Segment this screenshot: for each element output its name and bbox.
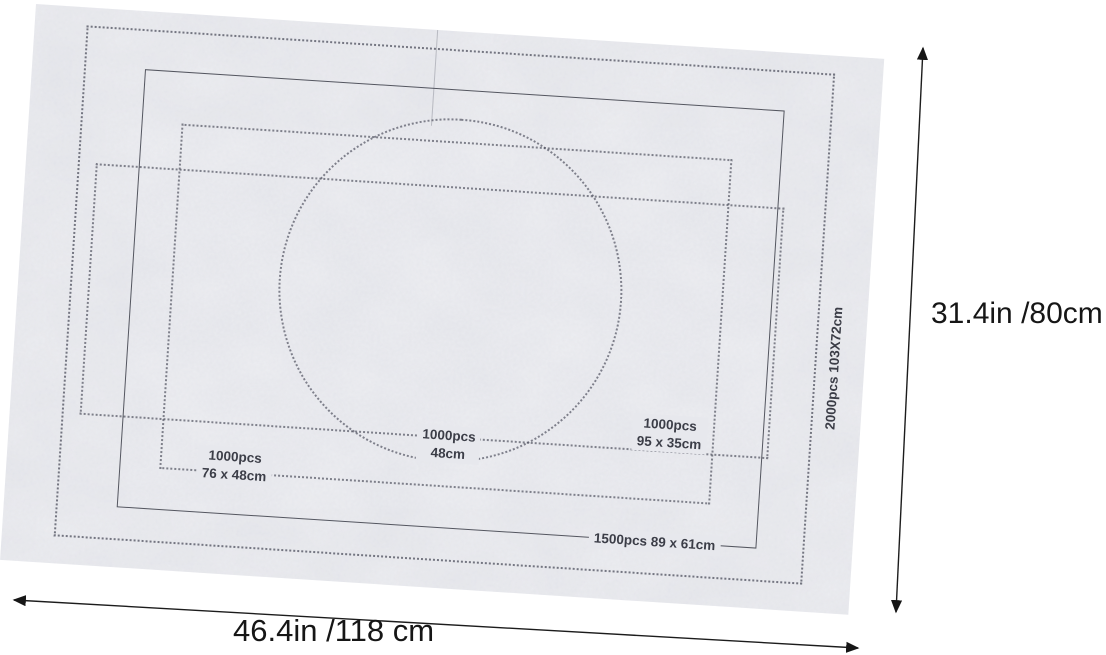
label-line: 95 x 35cm	[636, 432, 702, 454]
felt-mat: 1000pcs 48cm 1000pcs 76 x 48cm 1000pcs 9…	[0, 4, 884, 615]
label-1000pcs-round: 1000pcs 48cm	[416, 424, 482, 465]
product-dimension-diagram: 1000pcs 48cm 1000pcs 76 x 48cm 1000pcs 9…	[0, 0, 1106, 655]
label-2000pcs: 2000pcs 103X72cm	[821, 306, 846, 430]
label-line: 1000pcs	[422, 425, 476, 446]
height-dimension-label: 31.4in /80cm	[931, 297, 1103, 331]
height-dimension-arrow-icon	[896, 48, 923, 612]
label-line: 48cm	[421, 443, 475, 464]
label-1000pcs-76x48: 1000pcs 76 x 48cm	[196, 445, 273, 487]
width-dimension-label: 46.4in /118 cm	[233, 613, 434, 649]
label-line: 76 x 48cm	[201, 464, 267, 486]
label-1000pcs-95x35: 1000pcs 95 x 35cm	[631, 413, 708, 455]
